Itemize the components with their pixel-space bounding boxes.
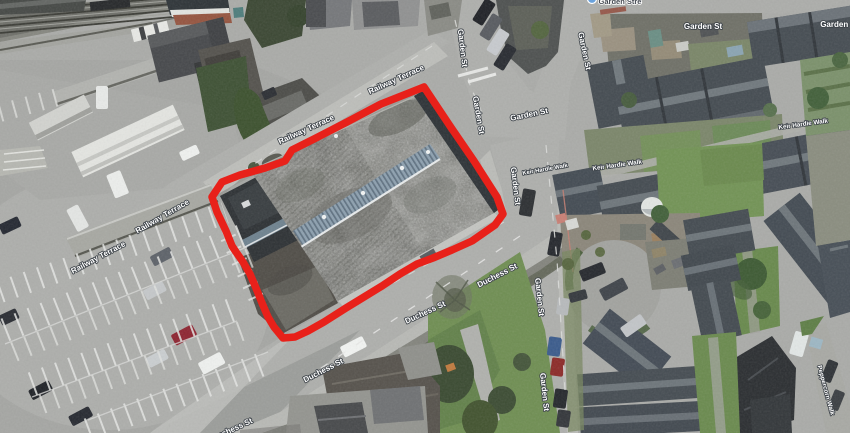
svg-text:Garden S: Garden S: [820, 20, 850, 29]
svg-text:Garden St: Garden St: [684, 22, 723, 31]
svg-text:Garden Stre: Garden Stre: [599, 0, 642, 6]
